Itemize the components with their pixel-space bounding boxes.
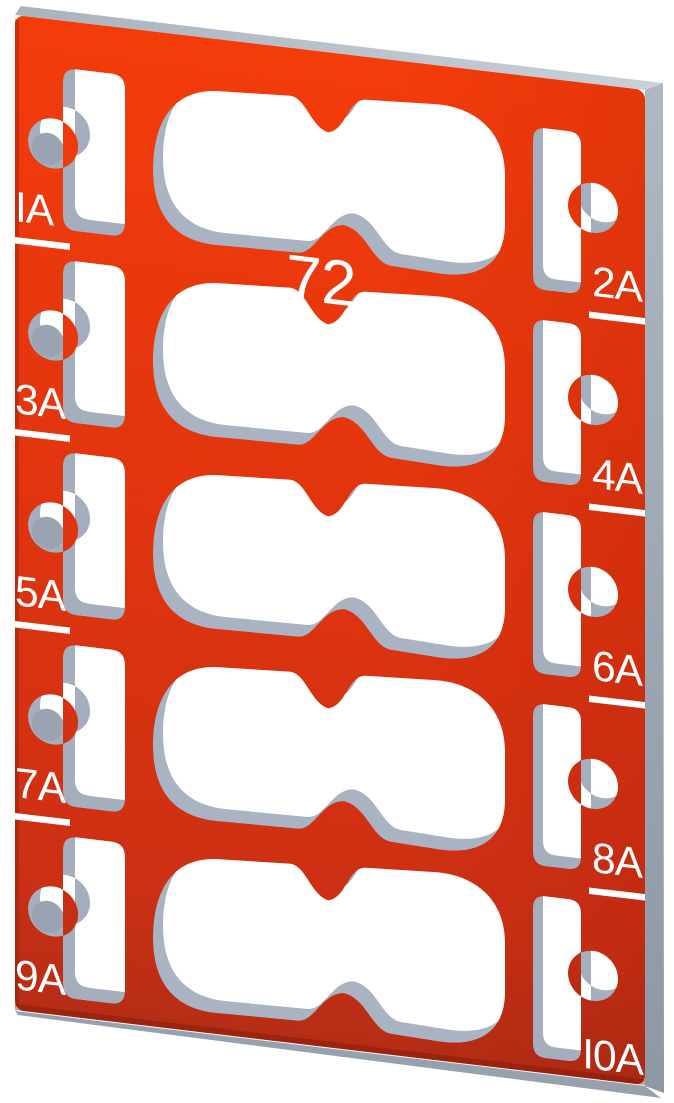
marker-plate-render: 72 IA 3A 5A 7A 9A 2A 4A 6A 8A I0A	[0, 0, 674, 1103]
plate-left-edge-shade	[15, 19, 19, 1006]
tag-label-5a: 5A	[15, 567, 67, 621]
plate-right-edge-face	[645, 83, 664, 1093]
size-label-72: 72	[286, 241, 355, 321]
tag-label-3a: 3A	[15, 375, 67, 429]
tag-label-1a: IA	[15, 183, 55, 236]
tag-label-8a: 8A	[592, 834, 644, 888]
plate-front: 72 IA 3A 5A 7A 9A 2A 4A 6A 8A I0A	[15, 15, 645, 1085]
tag-label-9a: 9A	[15, 951, 67, 1005]
tag-label-10a: I0A	[582, 1030, 644, 1085]
tag-label-6a: 6A	[592, 642, 644, 696]
tag-label-7a: 7A	[15, 759, 67, 813]
tag-label-4a: 4A	[592, 450, 644, 504]
tag-label-2a: 2A	[592, 258, 644, 312]
product-render-canvas: 72 IA 3A 5A 7A 9A 2A 4A 6A 8A I0A	[0, 0, 674, 1103]
